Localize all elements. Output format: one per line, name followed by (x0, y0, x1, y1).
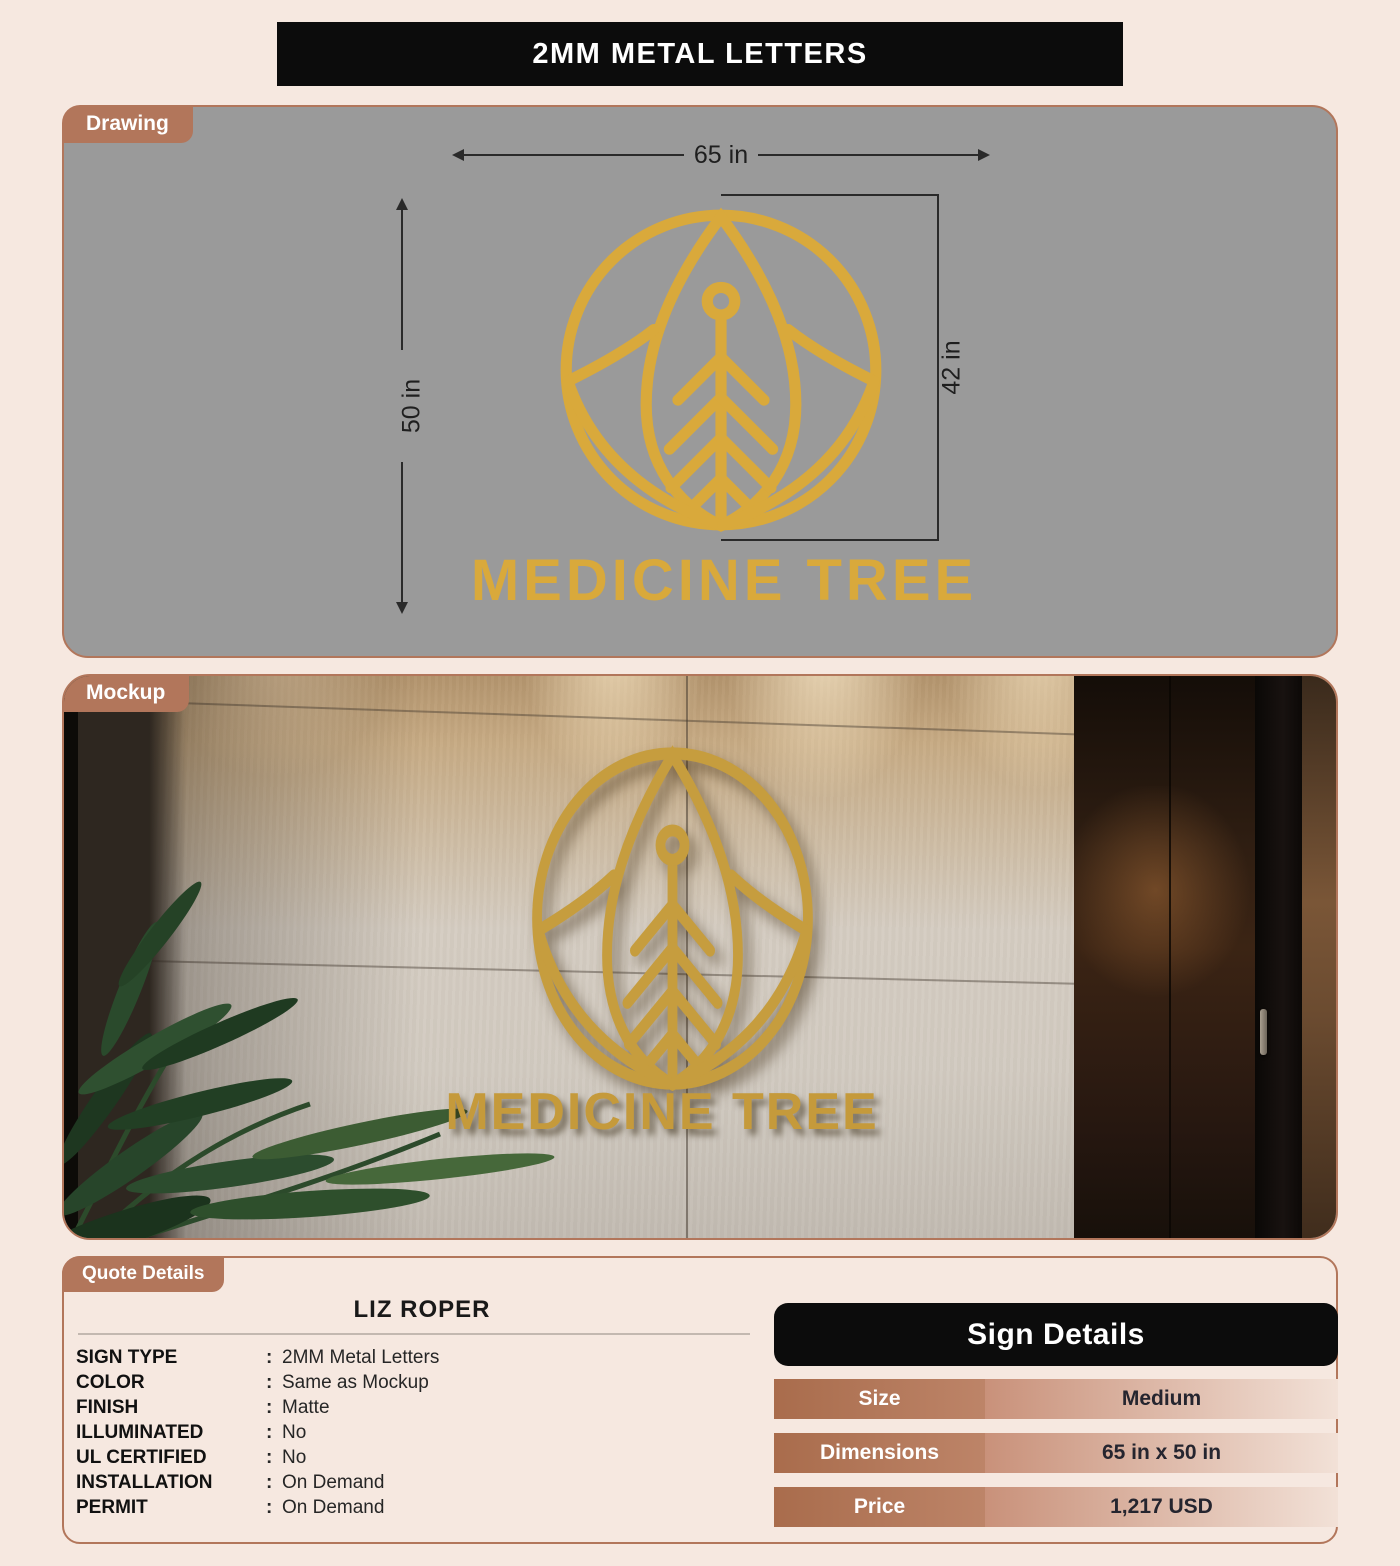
logo-wordmark-mockup: MEDICINE TREE (432, 1082, 892, 1142)
spec-row-finish: FINISH : Matte (76, 1395, 768, 1420)
width-dimension-label: 65 in (684, 141, 758, 170)
width-dimension: 65 in (452, 140, 990, 170)
quote-spec-section: LIZ ROPER SIGN TYPE : 2MM Metal Letters … (76, 1296, 768, 1520)
spec-row-illuminated: ILLUMINATED : No (76, 1420, 768, 1445)
mockup-tab: Mockup (62, 674, 189, 712)
logo-wordmark-drawing: MEDICINE TREE (384, 547, 1064, 614)
spec-row-color: COLOR : Same as Mockup (76, 1370, 768, 1395)
medicine-tree-logo-drawing (549, 198, 893, 542)
spec-row-installation: INSTALLATION : On Demand (76, 1470, 768, 1495)
wood-door (1074, 676, 1255, 1240)
logo-height-dimension-label: 42 in (938, 330, 967, 404)
drawing-tab: Drawing (62, 105, 193, 143)
page-title: 2MM METAL LETTERS (532, 38, 867, 71)
mockup-photo: MEDICINE TREE (64, 676, 1336, 1238)
sign-details-row-size: Size Medium (774, 1379, 1338, 1419)
customer-name: LIZ ROPER (76, 1296, 768, 1324)
spec-row-sign-type: SIGN TYPE : 2MM Metal Letters (76, 1345, 768, 1370)
sign-details-header: Sign Details (774, 1303, 1338, 1366)
arrow-right-icon (978, 149, 990, 161)
arrow-left-icon (452, 149, 464, 161)
height-dimension-label: 50 in (398, 346, 427, 466)
quote-details-tab: Quote Details (62, 1256, 224, 1292)
quote-details-tab-label: Quote Details (82, 1263, 204, 1285)
spec-row-ul-certified: UL CERTIFIED : No (76, 1445, 768, 1470)
sign-details-row-dimensions: Dimensions 65 in x 50 in (774, 1433, 1338, 1473)
mockup-tab-label: Mockup (86, 681, 165, 705)
drawing-panel: Drawing 65 in 50 in 42 in MEDICINE TREE (62, 105, 1338, 658)
door-handle (1260, 1009, 1267, 1055)
logo-height-bracket-top (721, 194, 939, 196)
side-wall (1302, 676, 1338, 1240)
mockup-panel: MEDICINE TREE Mockup (62, 674, 1338, 1240)
plant-decoration (62, 804, 580, 1240)
sign-details-title: Sign Details (967, 1318, 1145, 1352)
sign-details-row-price: Price 1,217 USD (774, 1487, 1338, 1527)
divider (78, 1333, 750, 1335)
title-banner: 2MM METAL LETTERS (277, 22, 1123, 86)
sign-details-section: Sign Details Size Medium Dimensions 65 i… (774, 1303, 1338, 1541)
spec-row-permit: PERMIT : On Demand (76, 1495, 768, 1520)
quote-details-panel: Quote Details LIZ ROPER SIGN TYPE : 2MM … (62, 1256, 1338, 1544)
door-frame (1255, 676, 1302, 1240)
drawing-tab-label: Drawing (86, 112, 169, 136)
medicine-tree-logo-mockup (522, 735, 823, 1102)
